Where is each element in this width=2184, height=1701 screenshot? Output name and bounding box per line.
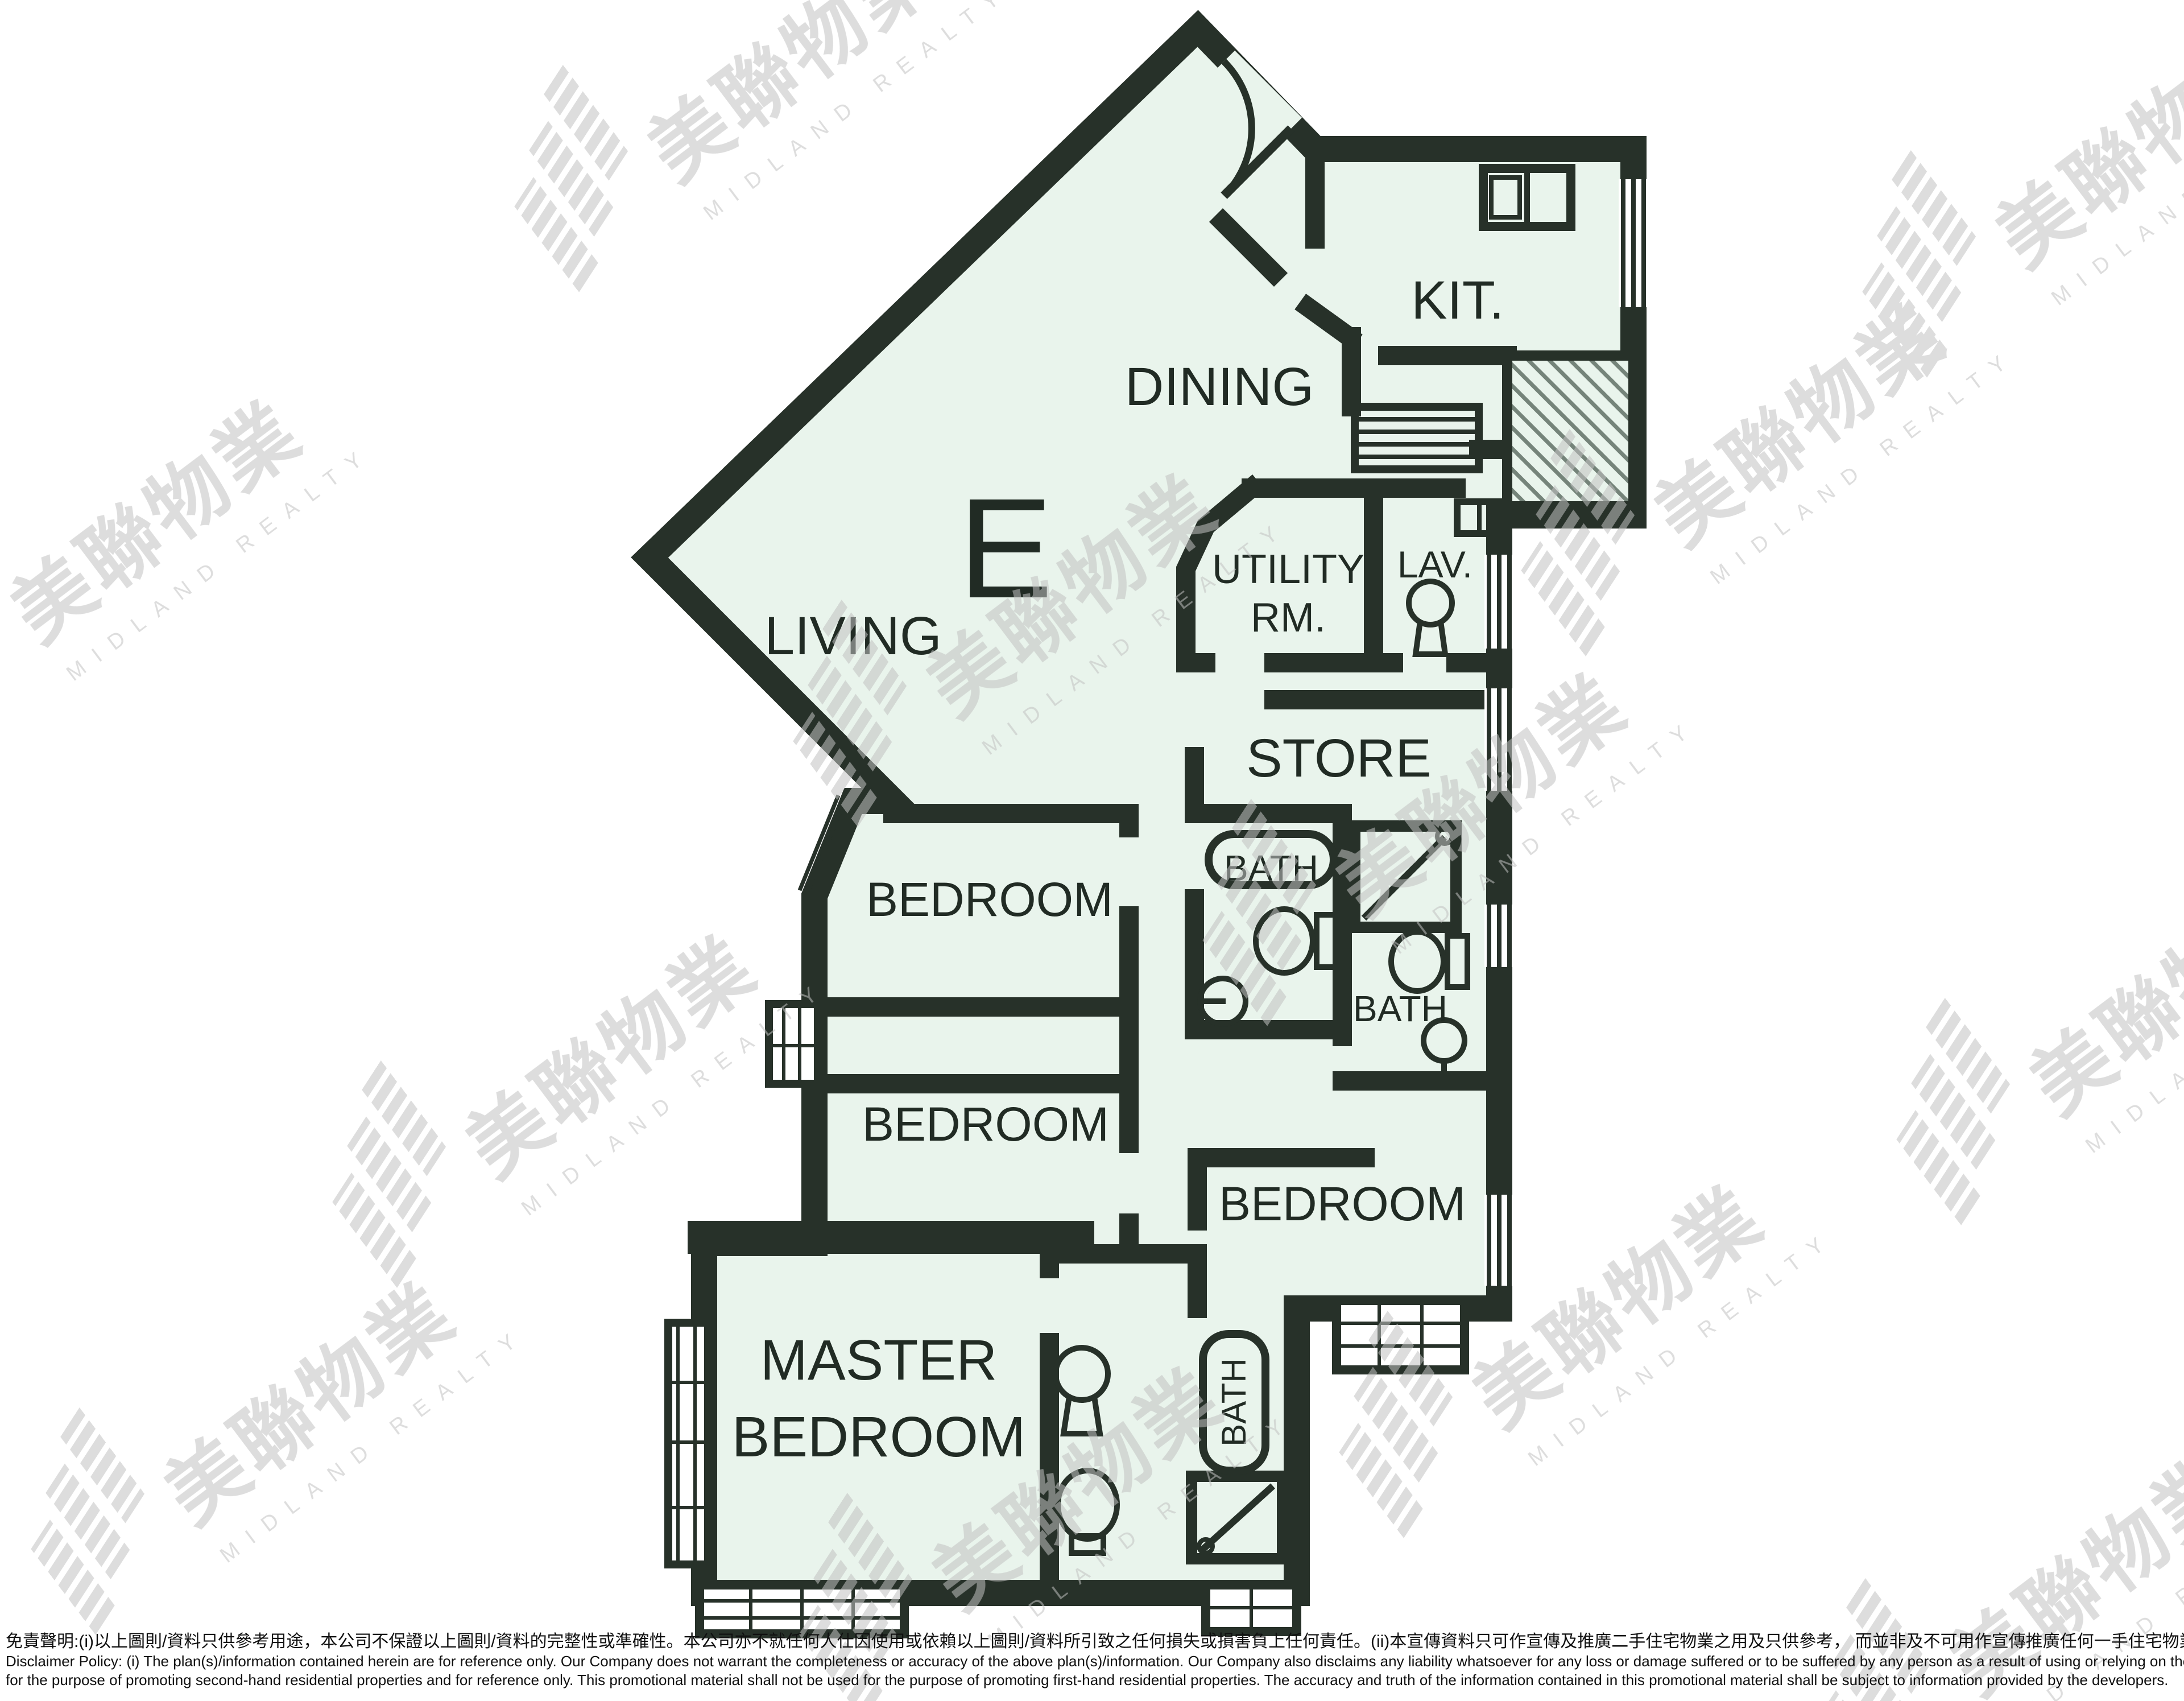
room-label-bath2: BATH xyxy=(1353,988,1447,1029)
room-label-bedroom1: BEDROOM xyxy=(866,873,1113,926)
room-label-lavatory: LAV. xyxy=(1397,543,1472,585)
midland-watermark xyxy=(1846,757,2184,1247)
room-label-kitchen: KIT. xyxy=(1411,270,1504,331)
room-label-master1: MASTER xyxy=(760,1328,998,1392)
midland-watermark xyxy=(0,1166,531,1657)
disclaimer-chinese: 免責聲明:(i)以上圖則/資料只供參考用途，本公司不保證以上圖則/資料的完整性或… xyxy=(6,1632,2184,1652)
disclaimer: 免責聲明:(i)以上圖則/資料只供參考用途，本公司不保證以上圖則/資料的完整性或… xyxy=(6,1632,2184,1690)
disclaimer-english-line2: for the purpose of promoting second-hand… xyxy=(6,1671,2184,1690)
floor-plan: 美聯物業 MIDLAND REALTY xyxy=(0,0,2184,1701)
midland-watermark xyxy=(0,284,378,775)
window-lavatory xyxy=(1484,555,1514,649)
window-kitchen xyxy=(1619,179,1648,307)
room-label-store: STORE xyxy=(1246,728,1432,788)
disclaimer-english-line1: Disclaimer Policy: (i) The plan(s)/infor… xyxy=(6,1652,2184,1671)
window-bedroom3 xyxy=(1484,1195,1514,1286)
window-bath2 xyxy=(1484,905,1514,967)
room-label-master2: BEDROOM xyxy=(732,1405,1026,1469)
window-master-bath xyxy=(1206,1585,1297,1632)
floor-plan-page: 美聯物業 MIDLAND REALTY xyxy=(0,0,2184,1701)
window-master-left-bay xyxy=(668,1323,708,1564)
room-label-utility2: RM. xyxy=(1251,595,1326,641)
room-label-bedroom2: BEDROOM xyxy=(862,1097,1109,1151)
room-label-dining: DINING xyxy=(1125,357,1314,417)
room-label-bedroom3: BEDROOM xyxy=(1219,1177,1466,1231)
